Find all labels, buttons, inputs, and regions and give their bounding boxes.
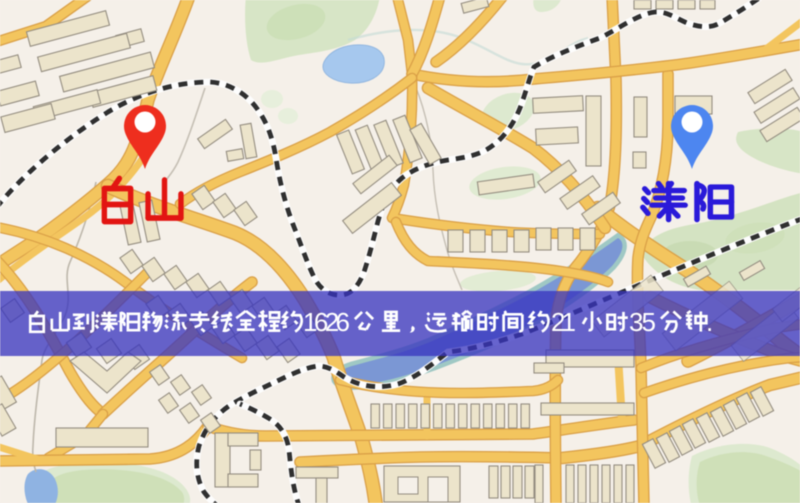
svg-text:.: . bbox=[706, 307, 713, 337]
svg-text:35: 35 bbox=[629, 307, 656, 337]
svg-text:21: 21 bbox=[551, 307, 576, 337]
svg-text:1626: 1626 bbox=[303, 307, 350, 337]
